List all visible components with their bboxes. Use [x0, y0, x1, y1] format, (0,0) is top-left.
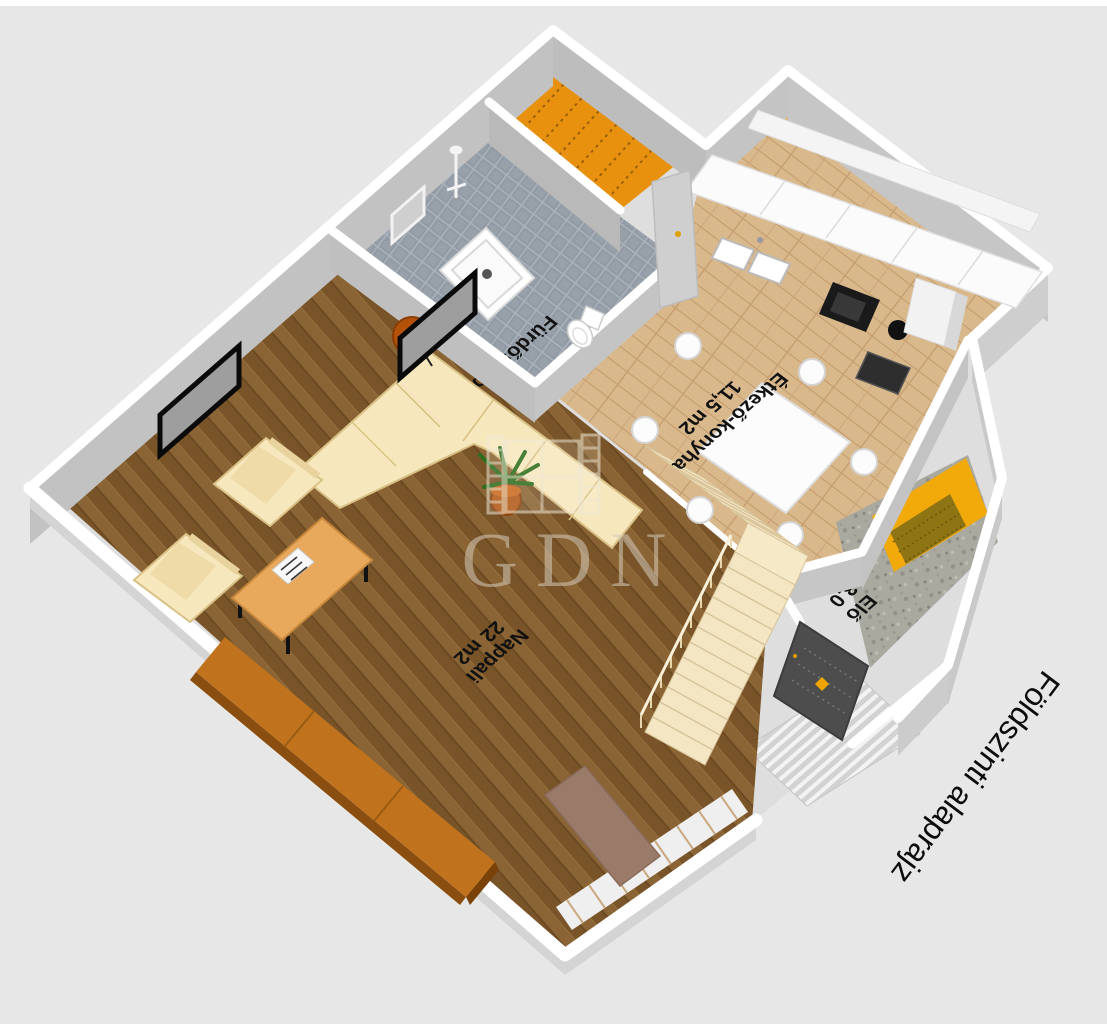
- stair-room-door: [652, 170, 698, 308]
- dining-chair: [675, 333, 701, 359]
- floorplan-page: Fürdőszoba Elő 3,0: [0, 0, 1107, 1024]
- dining-chair: [687, 497, 713, 523]
- top-strip: [0, 0, 1107, 6]
- watermark-text: GDN: [462, 516, 685, 603]
- dining-chair: [799, 359, 825, 385]
- floorplan-3d-render: Fürdőszoba Elő 3,0: [0, 0, 1107, 1024]
- dining-chair: [851, 449, 877, 475]
- dining-chair: [632, 417, 658, 443]
